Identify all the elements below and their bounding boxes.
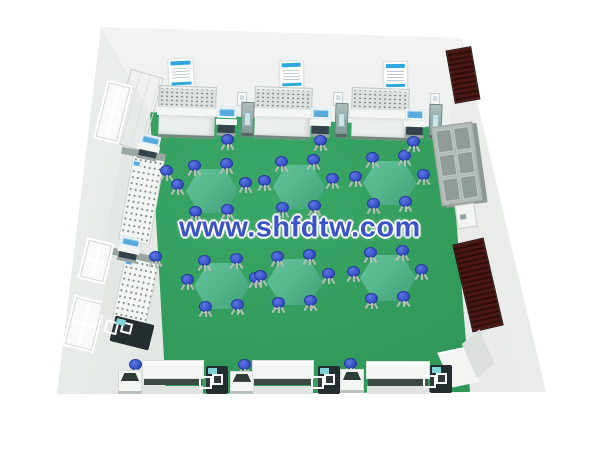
stool-leg — [320, 145, 322, 151]
instrument-rack — [430, 365, 452, 393]
window — [62, 295, 106, 353]
display-frame — [199, 376, 212, 389]
stool — [365, 293, 379, 310]
bench-cabinet-base — [158, 115, 216, 139]
front-workbench — [252, 360, 314, 394]
lectern-top — [121, 373, 139, 381]
stool-leg — [221, 144, 226, 150]
stool-leg — [227, 144, 229, 150]
stool — [220, 158, 234, 175]
poster-text-lines — [387, 71, 404, 82]
stool-leg — [423, 179, 425, 185]
stool-leg — [237, 309, 239, 315]
stool-leg — [314, 145, 319, 151]
stool-leg — [326, 183, 331, 189]
stool-leg — [278, 307, 280, 313]
stool-leg — [312, 259, 317, 265]
stool — [417, 169, 431, 186]
watermark-text: www.shfdtw.com — [179, 212, 421, 245]
louvered-door-panel — [446, 46, 481, 104]
poster-footer-band — [386, 84, 405, 87]
stool-leg — [198, 265, 203, 271]
stool — [304, 295, 318, 312]
stool-leg — [248, 187, 253, 193]
front-workbench — [142, 360, 204, 394]
stool-leg — [194, 170, 196, 176]
stool — [314, 135, 328, 152]
workbench-console — [253, 86, 313, 140]
poster-footer-band — [282, 83, 301, 87]
stool-leg — [404, 160, 406, 166]
stool — [181, 274, 195, 291]
stool — [303, 249, 317, 266]
stool-leg — [280, 261, 285, 267]
stool — [272, 297, 286, 314]
stool-leg — [347, 276, 352, 282]
stool-leg — [310, 305, 312, 311]
display-frame — [212, 374, 223, 385]
front-bench-base — [143, 386, 204, 395]
stool — [307, 154, 321, 171]
wall-poster — [383, 61, 409, 90]
stool-leg — [349, 181, 354, 187]
stand-screen — [432, 367, 441, 373]
stool — [198, 255, 212, 272]
stool-leg — [313, 164, 315, 170]
stand-screen — [208, 368, 217, 374]
stool-leg — [403, 301, 405, 307]
stool-leg — [245, 187, 247, 193]
stool-leg — [160, 175, 165, 181]
stool-leg — [267, 185, 272, 191]
stool-leg — [180, 189, 185, 195]
stool-leg — [239, 187, 244, 193]
front-workbench — [366, 361, 430, 394]
poster-text-lines — [172, 68, 191, 81]
display-frame — [423, 375, 436, 388]
bench-cabinet-base — [254, 116, 312, 140]
stand-foot — [335, 134, 346, 137]
stool — [160, 165, 174, 182]
stool-leg — [316, 164, 321, 170]
front-bench-top — [252, 360, 314, 379]
stool-leg — [207, 265, 212, 271]
stool-leg — [374, 303, 379, 309]
wall-poster — [167, 57, 195, 88]
stand-foot — [241, 133, 252, 136]
stool-leg — [208, 311, 213, 317]
stool-leg — [188, 170, 193, 176]
poster-header-band — [386, 64, 405, 68]
stool — [258, 175, 272, 192]
stool-leg — [322, 278, 327, 284]
stool — [230, 253, 244, 270]
stool-leg — [230, 144, 235, 150]
stool — [415, 264, 429, 281]
monitor-screen — [311, 108, 330, 120]
cabinet-compartment — [435, 128, 454, 153]
stool-leg — [177, 189, 179, 195]
stand-instrument — [338, 113, 345, 127]
lectern-desk — [118, 370, 142, 394]
stool-leg — [187, 284, 189, 290]
stand-instrument — [244, 112, 251, 126]
window-panes — [68, 301, 100, 347]
stool-leg — [426, 179, 431, 185]
stool-leg — [231, 309, 236, 315]
stool-leg — [149, 261, 154, 267]
front-bench-shadow — [368, 379, 428, 386]
stool-leg — [371, 303, 373, 309]
stool — [271, 251, 285, 268]
stool — [326, 173, 340, 190]
stool-leg — [181, 284, 186, 290]
stool-leg — [258, 185, 263, 191]
stool — [366, 152, 380, 169]
stool-leg — [220, 168, 225, 174]
lectern-top — [233, 374, 251, 382]
stool — [254, 270, 268, 287]
stool-leg — [397, 301, 402, 307]
stool-leg — [396, 255, 401, 261]
window-panes — [83, 243, 108, 278]
stool — [396, 245, 410, 262]
front-bench-base — [367, 386, 430, 394]
foreground-mask — [0, 394, 600, 450]
instrument-rack — [206, 366, 228, 394]
stool-leg — [166, 175, 168, 181]
box-knob — [460, 214, 467, 220]
poster-header-band — [282, 63, 301, 68]
stool-leg — [364, 257, 369, 263]
cabinet-compartment — [456, 150, 475, 175]
display-frame — [311, 376, 324, 389]
instrument-panel — [254, 86, 313, 110]
workbench-console — [157, 85, 217, 139]
stool-leg — [155, 261, 157, 267]
stool-leg — [271, 261, 276, 267]
stool-leg — [304, 305, 309, 311]
stool — [231, 299, 245, 316]
small-cabinet — [454, 203, 477, 230]
stool-leg — [372, 162, 374, 168]
stool-leg — [375, 162, 380, 168]
stool-leg — [171, 189, 176, 195]
stool-leg — [405, 255, 410, 261]
stool-leg — [415, 274, 420, 280]
stool-leg — [277, 261, 279, 267]
stool-leg — [229, 168, 234, 174]
stool-leg — [402, 255, 404, 261]
stool-leg — [353, 276, 355, 282]
stool-leg — [204, 265, 206, 271]
stool-leg — [417, 179, 422, 185]
stool — [349, 171, 363, 188]
stool — [322, 268, 336, 285]
stool — [188, 160, 202, 177]
stool-leg — [370, 257, 372, 263]
wall-poster — [279, 60, 305, 90]
stool — [275, 156, 289, 173]
monitor-screen — [405, 109, 424, 121]
stool-leg — [284, 166, 289, 172]
instrument-panel — [351, 87, 410, 111]
bench-cabinet-base — [351, 117, 409, 141]
lectern-top — [343, 372, 361, 380]
stool-leg — [406, 301, 411, 307]
stool-leg — [240, 309, 245, 315]
poster-text-lines — [283, 70, 300, 82]
front-bench-shadow — [254, 379, 312, 386]
storage-cabinet — [431, 121, 484, 206]
stool — [364, 247, 378, 264]
side-bench-screen — [132, 160, 141, 167]
instrument-rack — [318, 366, 340, 394]
equipment-stand — [240, 102, 254, 137]
stool-leg — [275, 166, 280, 172]
wall-box-display — [433, 96, 437, 102]
front-bench-top — [142, 360, 204, 379]
stand-screen — [320, 368, 329, 374]
lectern-desk — [340, 369, 364, 393]
poster-header-band — [170, 60, 190, 65]
stool-leg — [263, 280, 268, 286]
stool-leg — [331, 278, 336, 284]
stool — [221, 134, 235, 151]
stool-leg — [199, 311, 204, 317]
stool-leg — [264, 185, 266, 191]
stool-leg — [328, 278, 330, 284]
cabinet-compartment — [439, 153, 458, 178]
stool-leg — [416, 146, 421, 152]
stool-leg — [303, 259, 308, 265]
stool-leg — [197, 170, 202, 176]
cabinet-compartment — [460, 175, 479, 200]
stool-leg — [281, 166, 283, 172]
projector-stand — [109, 316, 154, 351]
stool-leg — [373, 257, 378, 263]
stool-leg — [236, 263, 238, 269]
lab-room-render: www.shfdtw.com — [0, 0, 600, 450]
stool-leg — [355, 181, 357, 187]
lectern-desk — [230, 371, 254, 394]
monitor-screen — [217, 107, 236, 119]
monitor-trolley — [309, 107, 331, 138]
stool — [399, 196, 413, 213]
cabinet-compartment — [442, 177, 461, 202]
stool-leg — [365, 303, 370, 309]
stool-leg — [366, 162, 371, 168]
stool-leg — [358, 181, 363, 187]
stool-leg — [309, 259, 311, 265]
display-frame — [324, 374, 335, 385]
front-bench-shadow — [144, 379, 202, 386]
stool-leg — [239, 263, 244, 269]
stool-leg — [205, 311, 207, 317]
stool-leg — [323, 145, 328, 151]
front-bench-base — [253, 386, 314, 395]
stool-leg — [169, 175, 174, 181]
stool-leg — [260, 280, 262, 286]
monitor-trolley — [403, 108, 425, 139]
stool-leg — [226, 168, 228, 174]
stool-leg — [332, 183, 334, 189]
stool-leg — [421, 274, 423, 280]
wall-box-display — [336, 95, 340, 101]
stool — [397, 291, 411, 308]
equipment-stand — [334, 103, 348, 138]
front-bench-top — [366, 361, 430, 379]
stool-leg — [407, 146, 412, 152]
stool-leg — [356, 276, 361, 282]
stool — [199, 301, 213, 318]
stool-leg — [424, 274, 429, 280]
stool-leg — [335, 183, 340, 189]
stool-leg — [307, 164, 312, 170]
display-frame — [436, 373, 447, 384]
stool-leg — [230, 263, 235, 269]
stool-leg — [190, 284, 195, 290]
stool — [407, 136, 421, 153]
stool-leg — [254, 280, 259, 286]
stool-leg — [158, 261, 163, 267]
stool-leg — [281, 307, 286, 313]
stool-leg — [313, 305, 318, 311]
stool — [239, 177, 253, 194]
stool — [347, 266, 361, 283]
wall-box-display — [240, 95, 244, 101]
louvered-door-panel — [452, 238, 503, 333]
stool-leg — [407, 160, 412, 166]
stool-leg — [398, 160, 403, 166]
instrument-panel — [158, 85, 217, 109]
stool-leg — [272, 307, 277, 313]
stool — [149, 251, 163, 268]
monitor-trolley — [215, 106, 237, 137]
stool-leg — [413, 146, 415, 152]
workbench-console — [350, 87, 410, 141]
cabinet-compartment — [453, 126, 472, 151]
